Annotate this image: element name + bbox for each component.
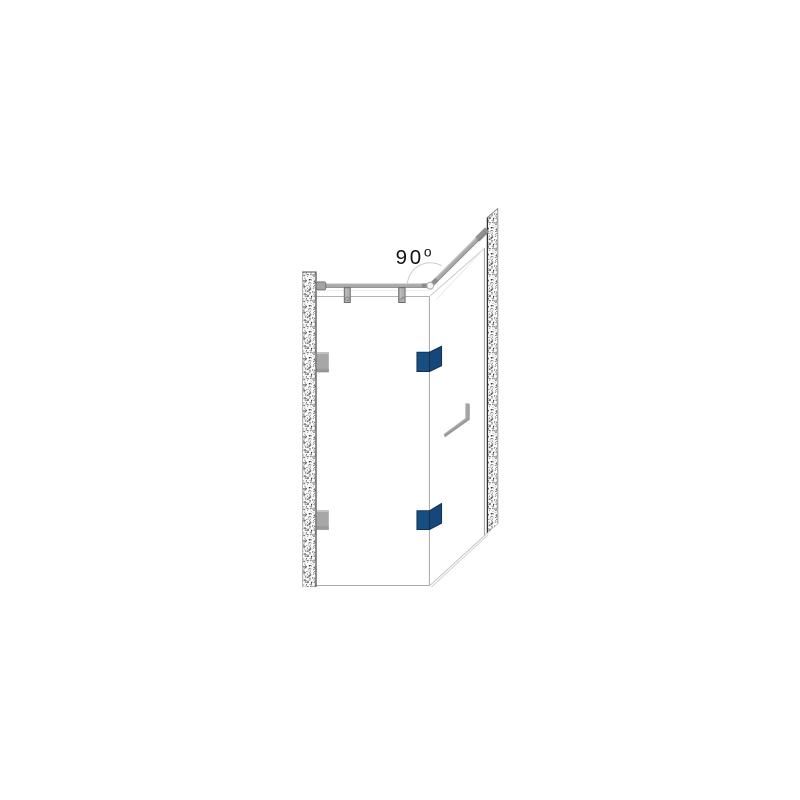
svg-text:90: 90 <box>396 246 424 269</box>
svg-text:o: o <box>424 244 432 259</box>
